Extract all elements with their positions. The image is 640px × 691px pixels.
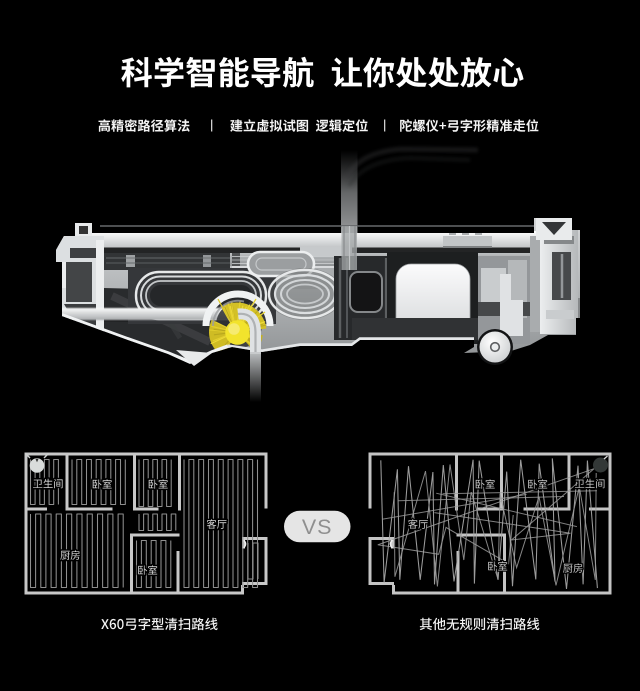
svg-text:VS: VS	[302, 515, 333, 539]
